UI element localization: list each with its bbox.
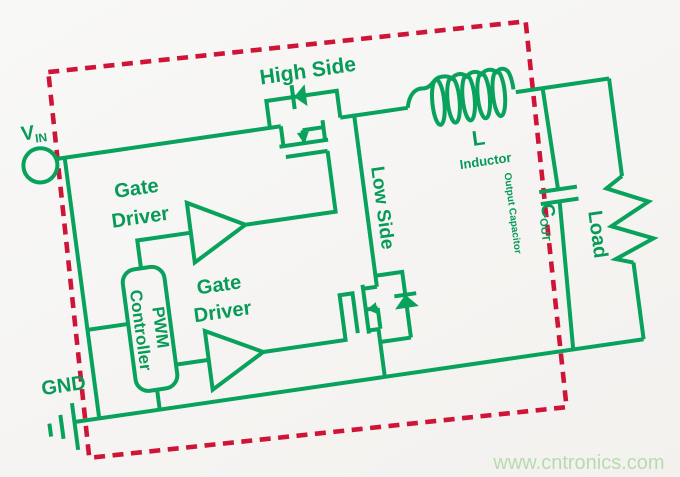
svg-text:Gate: Gate [113, 175, 160, 203]
svg-text:Load: Load [583, 209, 611, 260]
svg-text:www.cntronics.com: www.cntronics.com [492, 452, 664, 474]
svg-text:Driver: Driver [110, 203, 170, 233]
svg-text:Driver: Driver [193, 297, 253, 327]
svg-text:L: L [471, 126, 487, 151]
svg-text:High Side: High Side [258, 53, 357, 90]
svg-text:VIN: VIN [20, 120, 48, 147]
svg-text:Inductor: Inductor [459, 150, 512, 172]
svg-text:GND: GND [40, 372, 87, 400]
svg-text:Gate: Gate [196, 271, 243, 299]
svg-text:Output Capacitor: Output Capacitor [501, 172, 523, 255]
svg-text:COUT: COUT [535, 202, 562, 242]
